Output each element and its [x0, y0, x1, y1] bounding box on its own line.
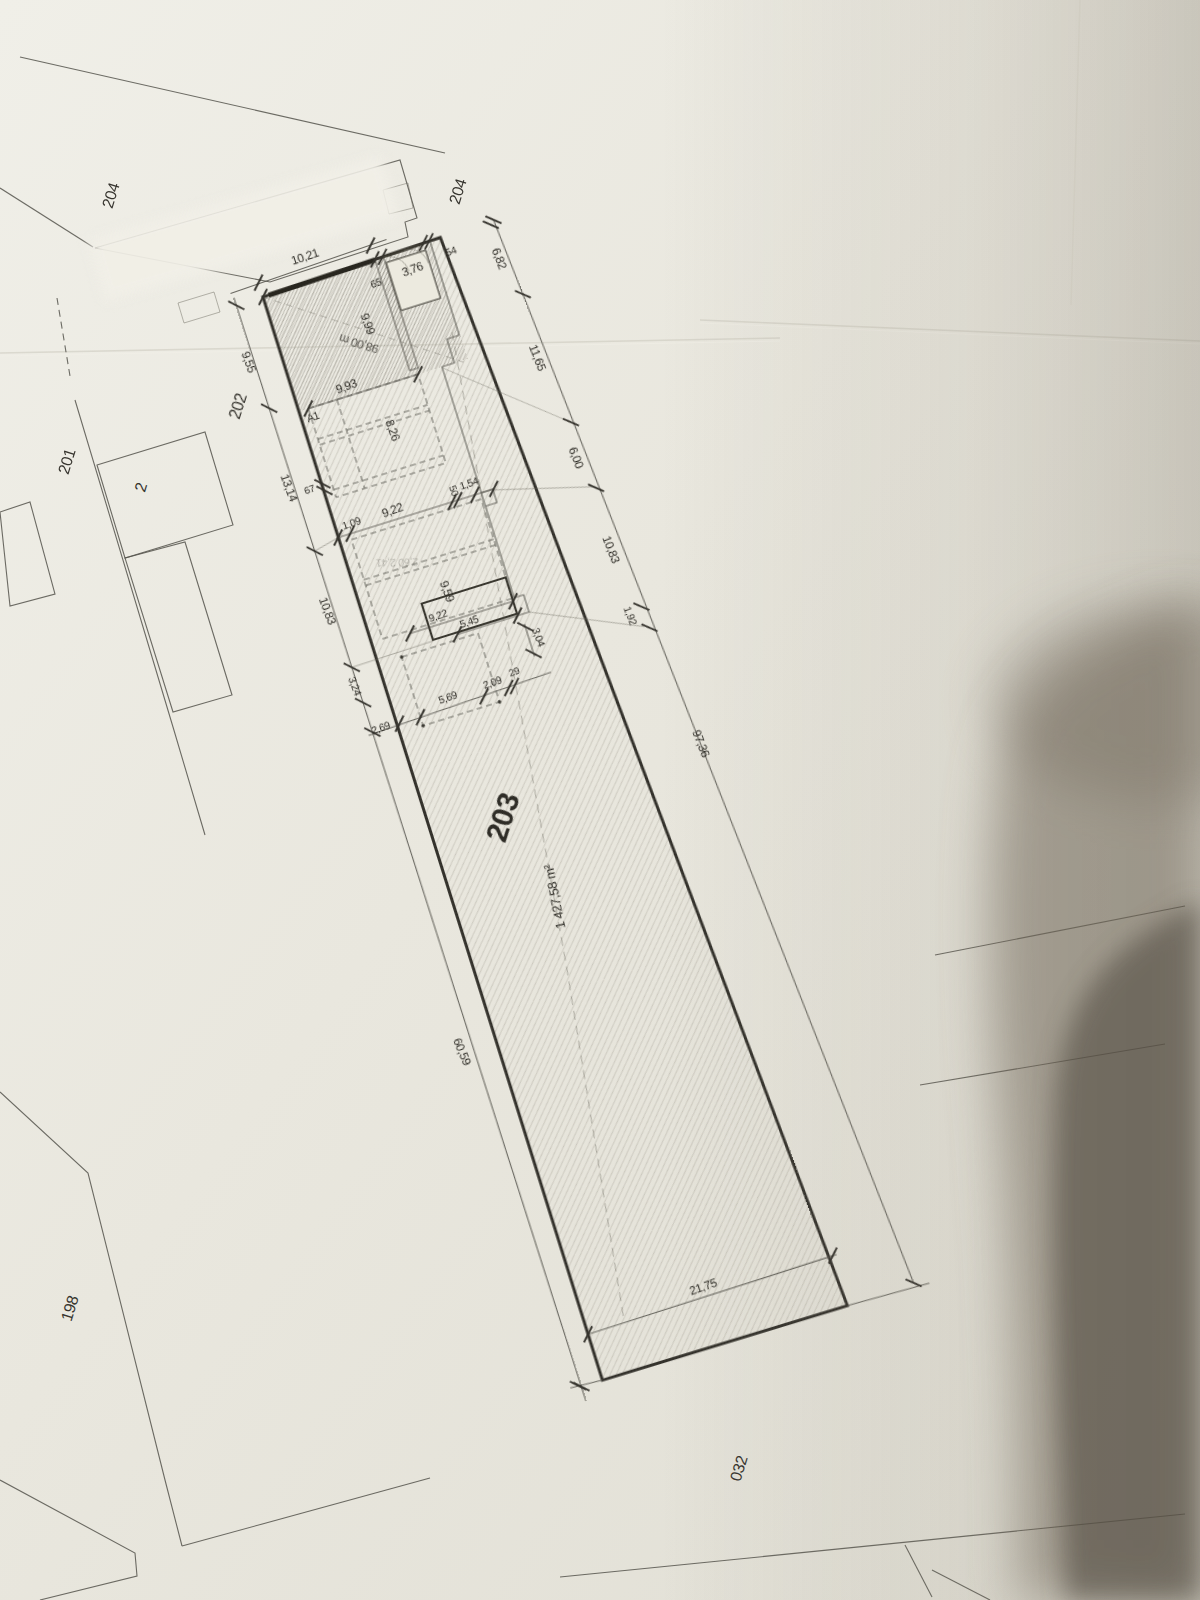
site-plan-svg: 10,21 65 3,76 54 9,55 13,14 10,83 3,24 2…	[0, 0, 1200, 1600]
photographed-site-plan: 10,21 65 3,76 54 9,55 13,14 10,83 3,24 2…	[0, 0, 1200, 1600]
photo-shadow	[990, 600, 1200, 1600]
